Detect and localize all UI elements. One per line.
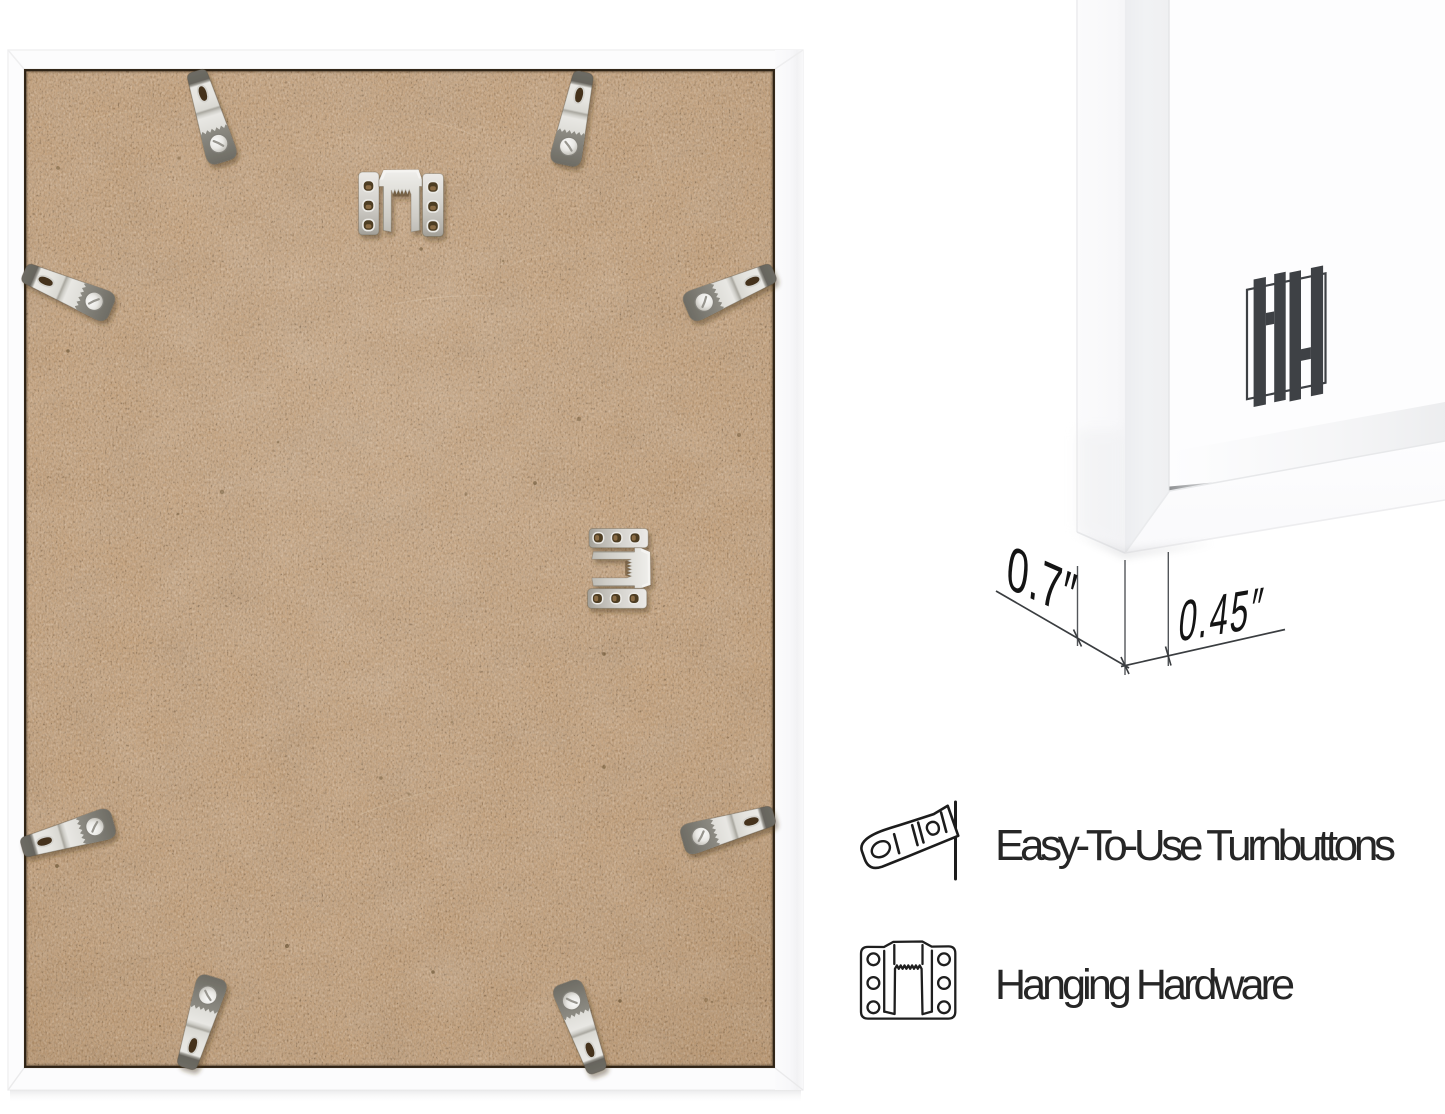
svg-text:Hanging Hardware: Hanging Hardware <box>995 961 1295 1009</box>
svg-text:0.45″: 0.45″ <box>1176 576 1268 655</box>
svg-text:Easy-To-Use Turnbuttons: Easy-To-Use Turnbuttons <box>995 821 1396 870</box>
svg-text:0.7″: 0.7″ <box>1003 532 1080 631</box>
